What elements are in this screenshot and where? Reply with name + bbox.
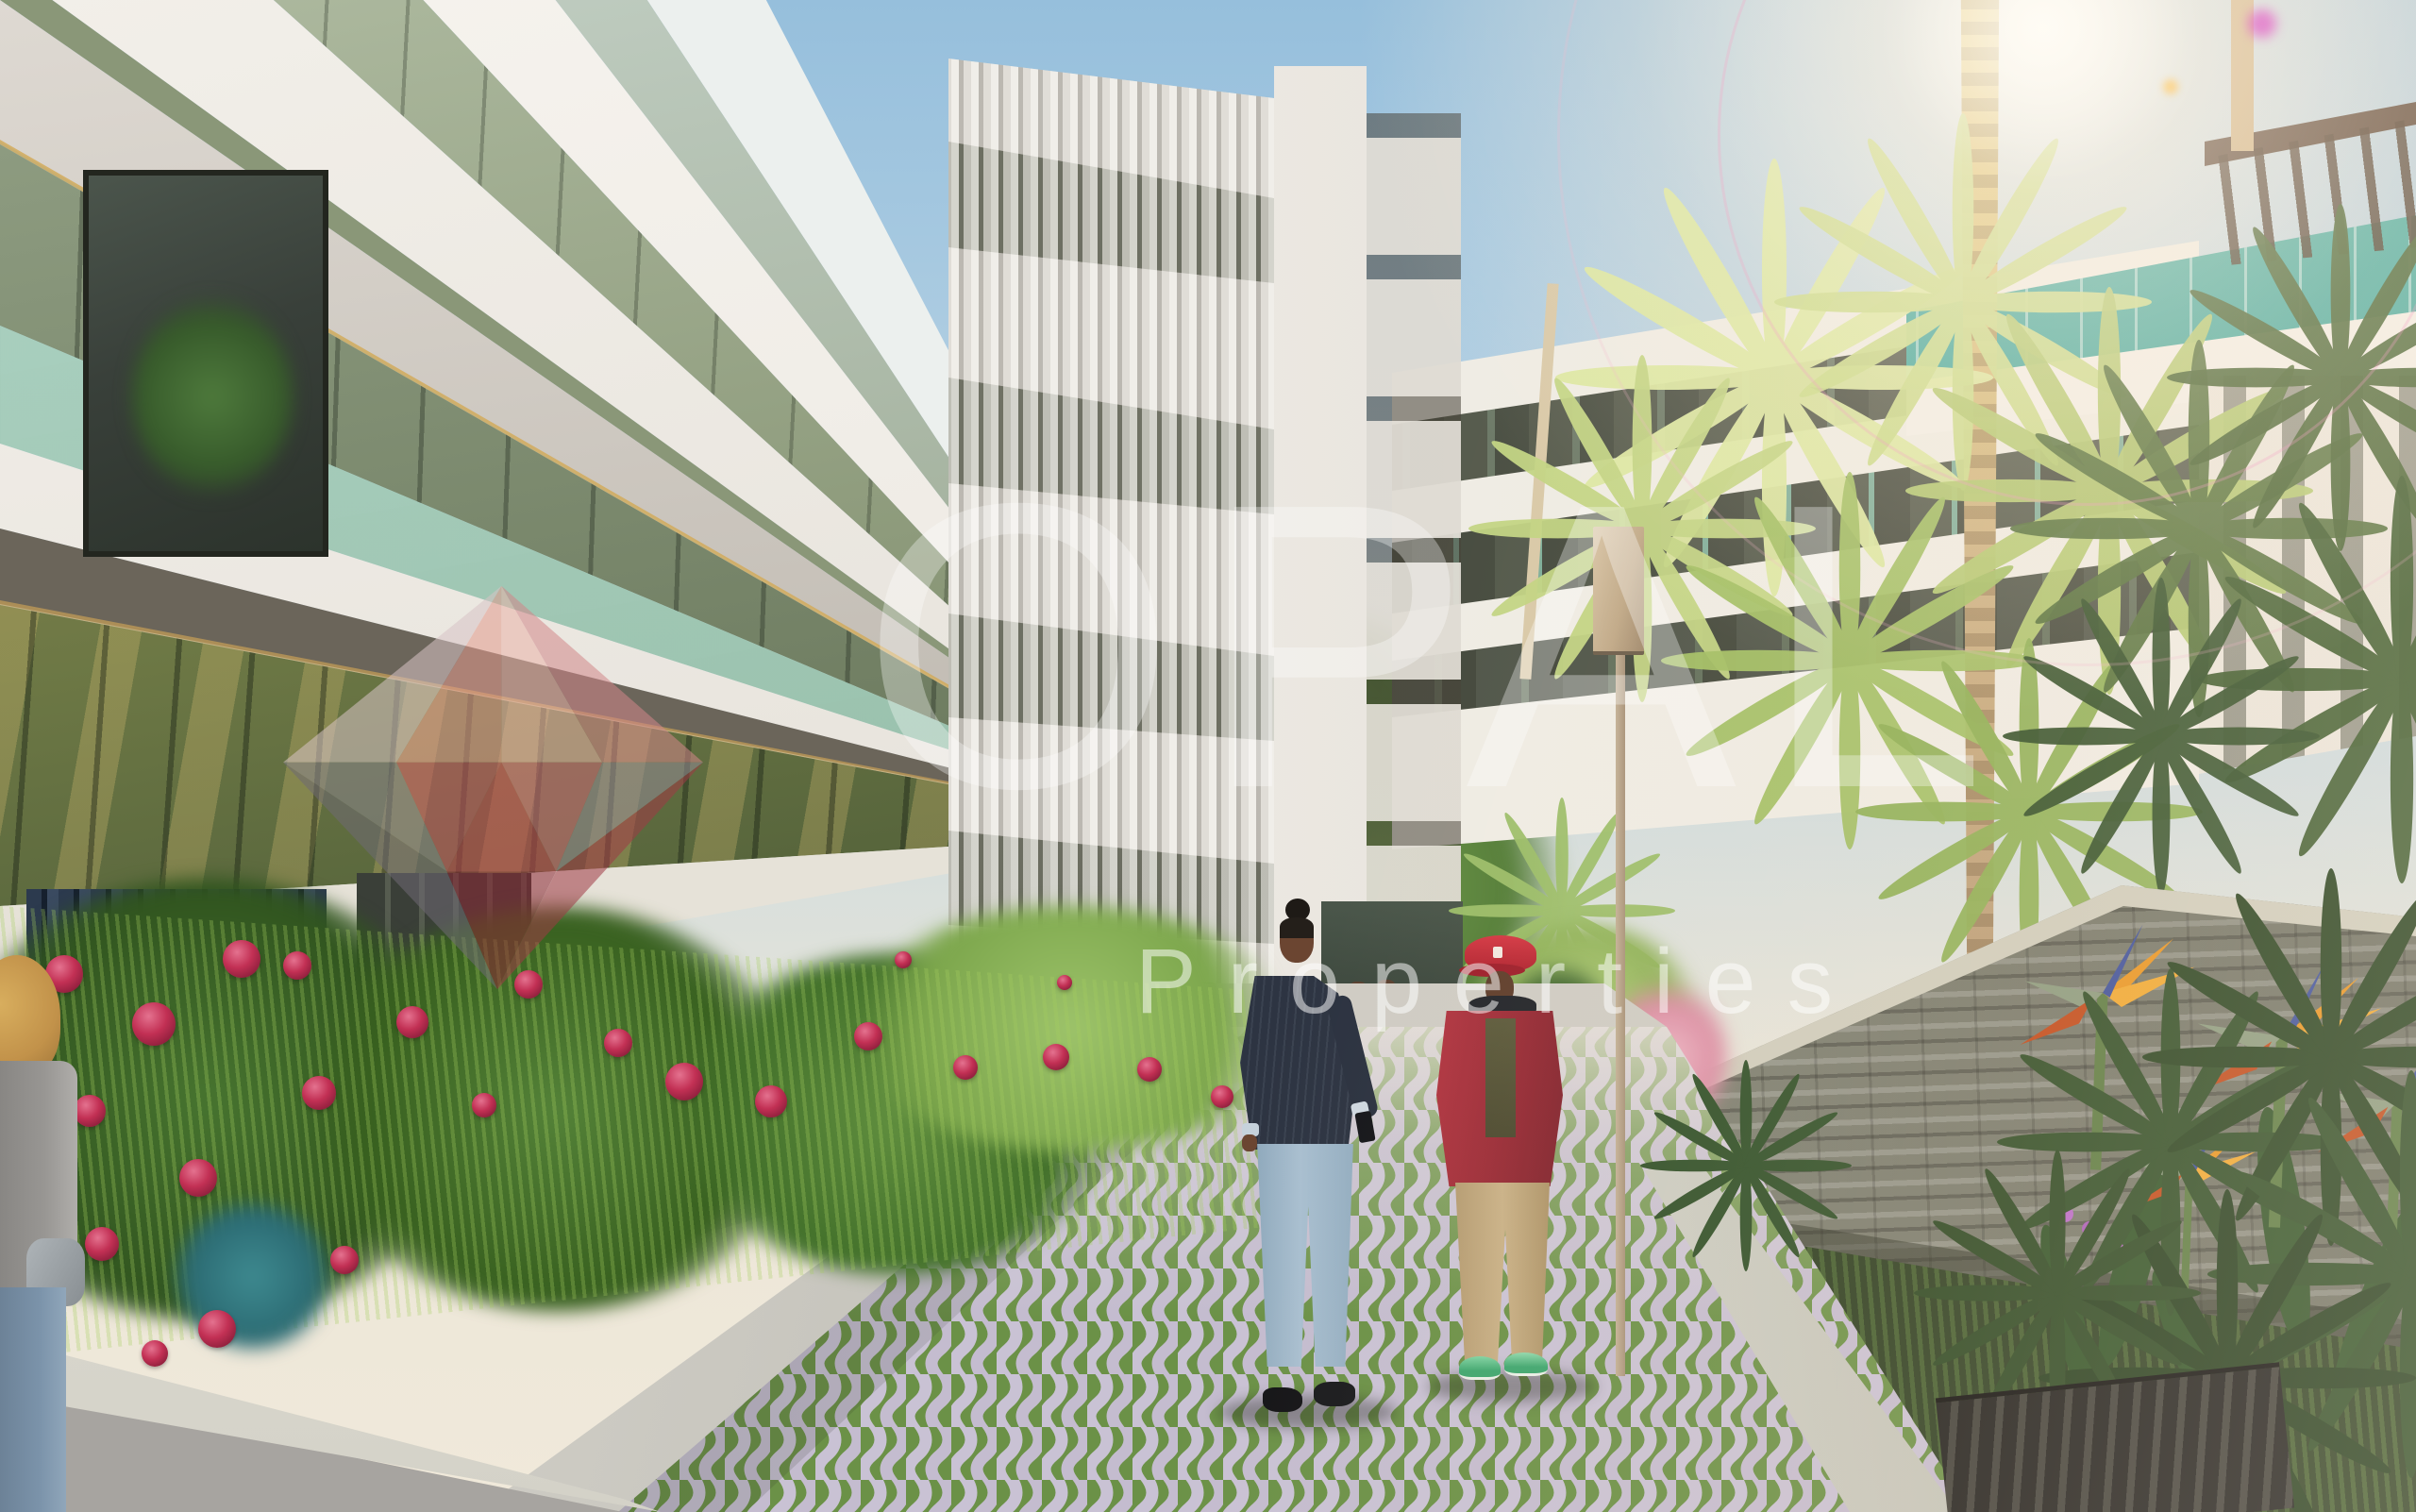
flare-dot-magenta — [2248, 9, 2276, 38]
blonde-hair — [0, 955, 60, 1078]
watermark-subtitle-text: Properties — [1135, 929, 1864, 1034]
boot-left — [1263, 1387, 1302, 1412]
boot-right — [1314, 1382, 1355, 1406]
hand — [1242, 1134, 1257, 1151]
partial-figure-left — [0, 955, 94, 1512]
jeans — [1255, 1144, 1355, 1367]
watermark-gem-logo — [283, 578, 703, 998]
courtyard-rendering: OPAL Properties — [0, 0, 2416, 1512]
olive-inner-shirt — [1485, 1018, 1516, 1137]
flare-dot-gold — [2163, 79, 2178, 94]
watermark-brand-text: OPAL — [861, 413, 2011, 880]
jeans — [0, 1287, 66, 1512]
green-sneaker-left — [1459, 1356, 1501, 1380]
khaki-pants — [1455, 1183, 1550, 1362]
green-sneaker-right — [1504, 1352, 1548, 1376]
